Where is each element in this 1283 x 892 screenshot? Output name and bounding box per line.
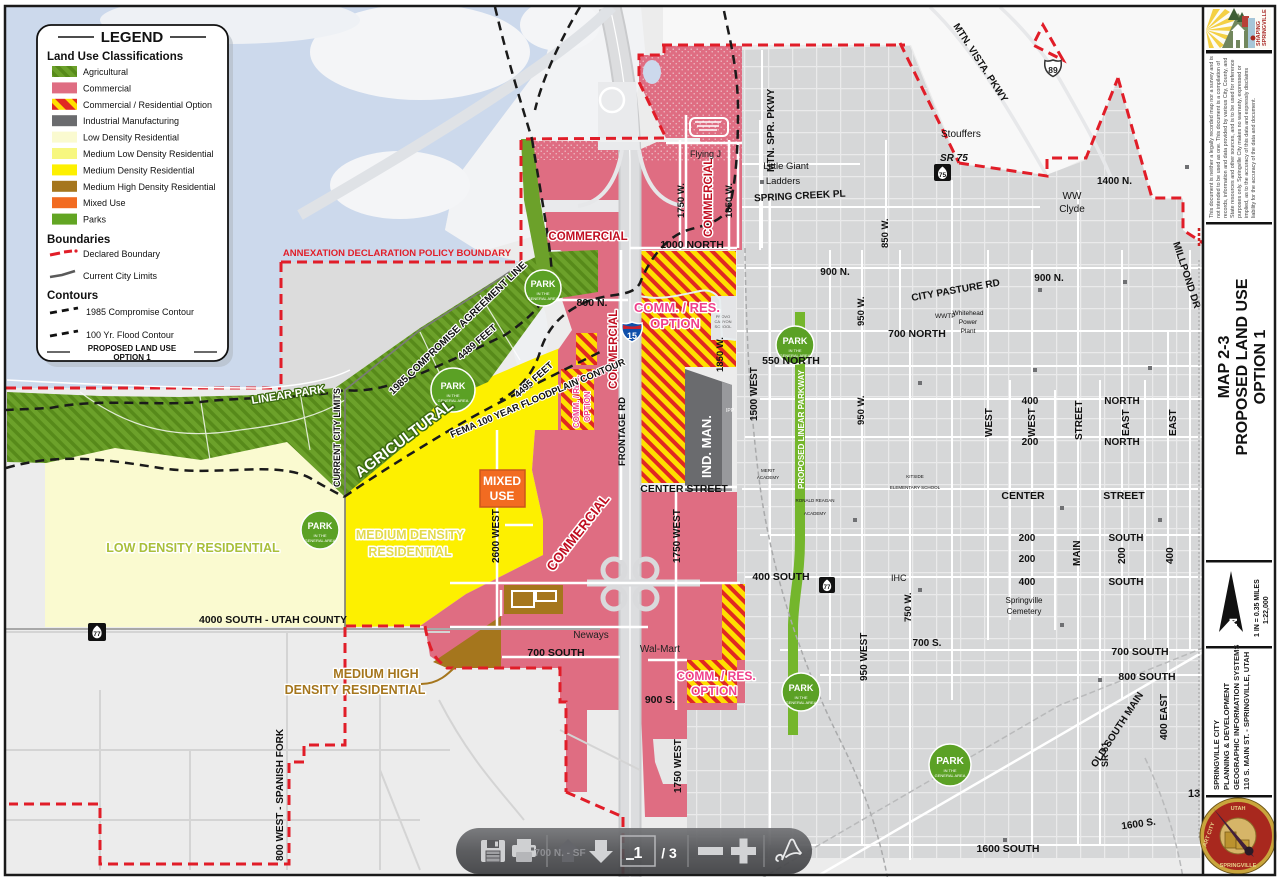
svg-text:Neways: Neways bbox=[573, 630, 609, 641]
svg-text:SCHOOL: SCHOOL bbox=[715, 324, 733, 329]
svg-text:Contours: Contours bbox=[47, 290, 98, 302]
svg-text:200: 200 bbox=[1117, 547, 1128, 564]
svg-text:PARK: PARK bbox=[783, 336, 808, 346]
svg-text:77: 77 bbox=[824, 585, 831, 591]
svg-text:WW: WW bbox=[1063, 191, 1082, 202]
svg-text:State resources and other sour: State resources and other sources, and i… bbox=[1230, 59, 1236, 218]
svg-text:/ 3: / 3 bbox=[661, 845, 677, 861]
svg-text:Clyde: Clyde bbox=[1059, 204, 1085, 215]
svg-text:550 NORTH: 550 NORTH bbox=[762, 355, 820, 367]
svg-text:PROPOSED LAND USE: PROPOSED LAND USE bbox=[1234, 278, 1251, 455]
svg-text:implied, as to the accuracy of: implied, as to the accuracy of this data… bbox=[1244, 68, 1250, 218]
svg-text:STREET: STREET bbox=[1103, 490, 1145, 502]
svg-text:PROPOSED LINEAR PARKWAY: PROPOSED LINEAR PARKWAY bbox=[797, 369, 806, 489]
svg-text:Ladders: Ladders bbox=[766, 176, 801, 187]
svg-text:MAIN: MAIN bbox=[1072, 540, 1083, 566]
svg-text:700 SOUTH: 700 SOUTH bbox=[527, 647, 584, 659]
svg-text:Commercial / Residential Optio: Commercial / Residential Option bbox=[83, 100, 212, 110]
svg-text:MTN. SPR. PKWY: MTN. SPR. PKWY bbox=[766, 88, 777, 172]
svg-text:1: 1 bbox=[634, 845, 643, 862]
svg-text:RESIDENTIAL: RESIDENTIAL bbox=[368, 545, 452, 559]
svg-text:Commercial: Commercial bbox=[83, 83, 131, 93]
svg-text:GENERAL AREA: GENERAL AREA bbox=[786, 700, 817, 705]
svg-text:Low Density Residential: Low Density Residential bbox=[83, 133, 179, 143]
svg-text:1 IN = 0.35 MILES: 1 IN = 0.35 MILES bbox=[1254, 579, 1261, 637]
svg-text:OPTION: OPTION bbox=[691, 684, 737, 698]
svg-text:1600 SOUTH: 1600 SOUTH bbox=[976, 843, 1039, 855]
svg-text:STREET: STREET bbox=[1074, 401, 1085, 440]
svg-text:1650 W.: 1650 W. bbox=[724, 183, 735, 218]
svg-text:COMMERCIAL: COMMERCIAL bbox=[608, 310, 620, 389]
svg-text:Medium Low Density Residential: Medium Low Density Residential bbox=[83, 149, 214, 159]
svg-text:400: 400 bbox=[1022, 396, 1039, 407]
svg-text:400 EAST: 400 EAST bbox=[1159, 694, 1170, 740]
svg-text:Flying J: Flying J bbox=[690, 149, 721, 159]
svg-text:EAST: EAST bbox=[1168, 409, 1179, 436]
svg-text:Current City Limits: Current City Limits bbox=[83, 271, 158, 281]
svg-text:PARK: PARK bbox=[531, 279, 556, 289]
svg-text:75: 75 bbox=[939, 172, 947, 179]
svg-text:Power: Power bbox=[959, 319, 978, 326]
svg-text:1500 WEST: 1500 WEST bbox=[749, 367, 760, 421]
svg-text:900 N.: 900 N. bbox=[820, 267, 850, 278]
svg-text:ELEMENTARY SCHOOL: ELEMENTARY SCHOOL bbox=[890, 485, 941, 490]
svg-text:Mixed Use: Mixed Use bbox=[83, 198, 126, 208]
svg-text:MAP 2-3: MAP 2-3 bbox=[1216, 335, 1233, 398]
svg-text:IND. MAN.: IND. MAN. bbox=[699, 415, 714, 478]
svg-text:Medium High Density Residentia: Medium High Density Residential bbox=[83, 182, 216, 192]
svg-text:Whitehead: Whitehead bbox=[952, 310, 983, 317]
svg-text:SOUTH: SOUTH bbox=[1109, 533, 1144, 544]
svg-text:OPTION: OPTION bbox=[583, 391, 592, 422]
svg-text:IHC: IHC bbox=[891, 573, 907, 583]
svg-text:1750 WEST: 1750 WEST bbox=[672, 509, 683, 563]
svg-text:EAST: EAST bbox=[1121, 409, 1132, 436]
svg-text:WEST: WEST bbox=[1027, 408, 1038, 437]
svg-text:COMMERCIAL: COMMERCIAL bbox=[548, 231, 627, 243]
svg-text:89: 89 bbox=[1048, 65, 1058, 75]
svg-text:KITSIDE: KITSIDE bbox=[906, 474, 924, 479]
svg-text:LOW DENSITY RESIDENTIAL: LOW DENSITY RESIDENTIAL bbox=[106, 541, 280, 555]
svg-text:2600 WEST: 2600 WEST bbox=[491, 509, 502, 563]
svg-text:PROPOSED LAND USE: PROPOSED LAND USE bbox=[88, 344, 177, 353]
svg-text:1850 W.: 1850 W. bbox=[715, 337, 726, 372]
svg-text:900 S.: 900 S. bbox=[645, 694, 675, 706]
svg-text:1000 NORTH: 1000 NORTH bbox=[660, 239, 724, 251]
svg-text:Springville: Springville bbox=[1006, 596, 1043, 605]
svg-text:FRONTAGE RD: FRONTAGE RD bbox=[617, 397, 628, 466]
svg-text:COMMERCIAL: COMMERCIAL bbox=[703, 158, 715, 237]
svg-text:LEGEND: LEGEND bbox=[101, 29, 164, 46]
svg-text:4000 SOUTH - UTAH COUNTY: 4000 SOUTH - UTAH COUNTY bbox=[199, 614, 347, 626]
svg-text:PARK: PARK bbox=[789, 683, 814, 693]
svg-text:ACADEMY: ACADEMY bbox=[757, 475, 779, 480]
svg-text:SPRINGVILLE: SPRINGVILLE bbox=[1262, 9, 1268, 46]
svg-text:CURRENT CITY LIMITS: CURRENT CITY LIMITS bbox=[332, 388, 342, 487]
svg-text:400 SOUTH: 400 SOUTH bbox=[752, 571, 809, 583]
svg-text:N: N bbox=[1228, 618, 1240, 626]
svg-text:NORTH: NORTH bbox=[1104, 396, 1140, 407]
svg-text:Cemetery: Cemetery bbox=[1007, 607, 1042, 616]
svg-text:Wal-Mart: Wal-Mart bbox=[640, 644, 680, 655]
svg-text:MIXED: MIXED bbox=[483, 474, 521, 488]
svg-text:Medium Density Residential: Medium Density Residential bbox=[83, 165, 195, 175]
svg-text:GENERAL AREA: GENERAL AREA bbox=[935, 773, 966, 778]
svg-text:MEDIUM HIGH: MEDIUM HIGH bbox=[333, 667, 418, 681]
svg-text:200: 200 bbox=[1019, 533, 1036, 544]
svg-text:700 SOUTH: 700 SOUTH bbox=[1111, 646, 1168, 658]
svg-text:1750 W.: 1750 W. bbox=[676, 183, 687, 218]
svg-text:PARK: PARK bbox=[308, 521, 333, 531]
svg-text:WEST: WEST bbox=[984, 408, 995, 437]
svg-text:GENERAL AREA: GENERAL AREA bbox=[528, 296, 559, 301]
svg-text:Declared Boundary: Declared Boundary bbox=[83, 249, 161, 259]
svg-text:200: 200 bbox=[1019, 554, 1036, 565]
svg-text:USE: USE bbox=[490, 489, 515, 503]
svg-text:CENTER STREET: CENTER STREET bbox=[640, 483, 728, 495]
svg-text:200: 200 bbox=[1022, 437, 1039, 448]
svg-text:1985 Compromise Contour: 1985 Compromise Contour bbox=[86, 307, 194, 317]
svg-text:not intended to be used as one: not intended to be used as one. This doc… bbox=[1216, 61, 1222, 218]
svg-text:CENTER: CENTER bbox=[1001, 490, 1045, 502]
svg-text:950 WEST: 950 WEST bbox=[859, 633, 870, 681]
svg-text:OPTION 1: OPTION 1 bbox=[1252, 330, 1269, 405]
svg-text:COMM. / RES.: COMM. / RES. bbox=[676, 669, 755, 683]
svg-text:1400 N.: 1400 N. bbox=[1097, 176, 1132, 187]
svg-text:IPP: IPP bbox=[726, 408, 735, 414]
svg-text:ANNEXATION DECLARATION POLICY: ANNEXATION DECLARATION POLICY BOUNDARY bbox=[283, 248, 512, 259]
svg-text:OPTION: OPTION bbox=[650, 316, 700, 331]
svg-text:SOUTH: SOUTH bbox=[1109, 577, 1144, 588]
svg-text:SR 51: SR 51 bbox=[1100, 742, 1110, 767]
svg-text:SPRINGVILLE: SPRINGVILLE bbox=[1220, 863, 1257, 869]
svg-text:PLANNING & DEVELOPMENT: PLANNING & DEVELOPMENT bbox=[1222, 682, 1231, 790]
svg-text:15: 15 bbox=[627, 331, 637, 341]
svg-text:750 W.: 750 W. bbox=[903, 592, 914, 622]
svg-text:This document is neither a leg: This document is neither a legally recor… bbox=[1209, 56, 1215, 218]
svg-text:800 SOUTH: 800 SOUTH bbox=[1118, 671, 1175, 683]
svg-text:RONALD REAGAN: RONALD REAGAN bbox=[795, 498, 834, 503]
svg-text:PARK: PARK bbox=[936, 756, 964, 767]
svg-text:1750 WEST: 1750 WEST bbox=[673, 739, 684, 793]
svg-text:110 S. MAIN ST. - SPRINGVILLE,: 110 S. MAIN ST. - SPRINGVILLE, UTAH bbox=[1242, 652, 1251, 790]
svg-text:COMM. / RES.: COMM. / RES. bbox=[634, 300, 720, 315]
svg-text:900 N.: 900 N. bbox=[1034, 273, 1064, 284]
svg-text:Agricultural: Agricultural bbox=[83, 67, 128, 77]
svg-text:records, information and data: records, information and data provided b… bbox=[1223, 58, 1229, 218]
svg-text:SR 75: SR 75 bbox=[940, 153, 968, 164]
svg-text:400: 400 bbox=[1165, 547, 1176, 564]
svg-text:Parks: Parks bbox=[83, 215, 107, 225]
svg-text:700 NORTH: 700 NORTH bbox=[888, 328, 946, 340]
svg-text:Boundaries: Boundaries bbox=[47, 234, 110, 246]
svg-text:950 W.: 950 W. bbox=[856, 296, 867, 326]
svg-text:400: 400 bbox=[1019, 577, 1036, 588]
svg-text:MEDIUM DENSITY: MEDIUM DENSITY bbox=[356, 528, 465, 542]
svg-text:77: 77 bbox=[93, 631, 101, 638]
svg-text:SPRINGVILLE CITY: SPRINGVILLE CITY bbox=[1212, 720, 1221, 790]
svg-text:700 S.: 700 S. bbox=[913, 638, 942, 649]
svg-text:DENSITY RESIDENTIAL: DENSITY RESIDENTIAL bbox=[285, 683, 426, 697]
svg-text:800 N.: 800 N. bbox=[577, 297, 608, 309]
svg-text:100 Yr. Flood Contour: 100 Yr. Flood Contour bbox=[86, 330, 174, 340]
svg-text:PARK: PARK bbox=[441, 381, 466, 391]
svg-text:GENERAL AREA: GENERAL AREA bbox=[305, 538, 336, 543]
svg-text:1:22,000: 1:22,000 bbox=[1263, 596, 1270, 624]
svg-text:950 W.: 950 W. bbox=[856, 395, 867, 425]
svg-text:800 WEST - SPANISH FORK: 800 WEST - SPANISH FORK bbox=[275, 728, 286, 861]
svg-text:MERIT: MERIT bbox=[761, 468, 775, 473]
svg-text:850 W.: 850 W. bbox=[880, 218, 891, 248]
svg-text:Little Giant: Little Giant bbox=[763, 161, 809, 172]
svg-text:Plant: Plant bbox=[961, 328, 976, 335]
svg-text:Industrial Manufacturing: Industrial Manufacturing bbox=[83, 116, 179, 126]
svg-text:Stouffers: Stouffers bbox=[941, 129, 981, 140]
svg-text:OPTION 1: OPTION 1 bbox=[113, 353, 151, 362]
svg-text:ACADEMY: ACADEMY bbox=[804, 511, 826, 516]
svg-text:700 N. - SF: 700 N. - SF bbox=[534, 848, 585, 859]
svg-text:Land Use Classifications: Land Use Classifications bbox=[47, 51, 183, 63]
svg-text:NORTH: NORTH bbox=[1104, 437, 1140, 448]
svg-text:liability for the accuracy of: liability for the accuracy of the data a… bbox=[1251, 98, 1257, 218]
svg-text:purposes only. Springville Cit: purposes only. Springville City makes no… bbox=[1237, 65, 1243, 218]
svg-text:UTAH: UTAH bbox=[1231, 806, 1246, 812]
svg-text:GEOGRAPHIC INFORMATION SYSTEMS: GEOGRAPHIC INFORMATION SYSTEMS bbox=[1232, 645, 1241, 790]
